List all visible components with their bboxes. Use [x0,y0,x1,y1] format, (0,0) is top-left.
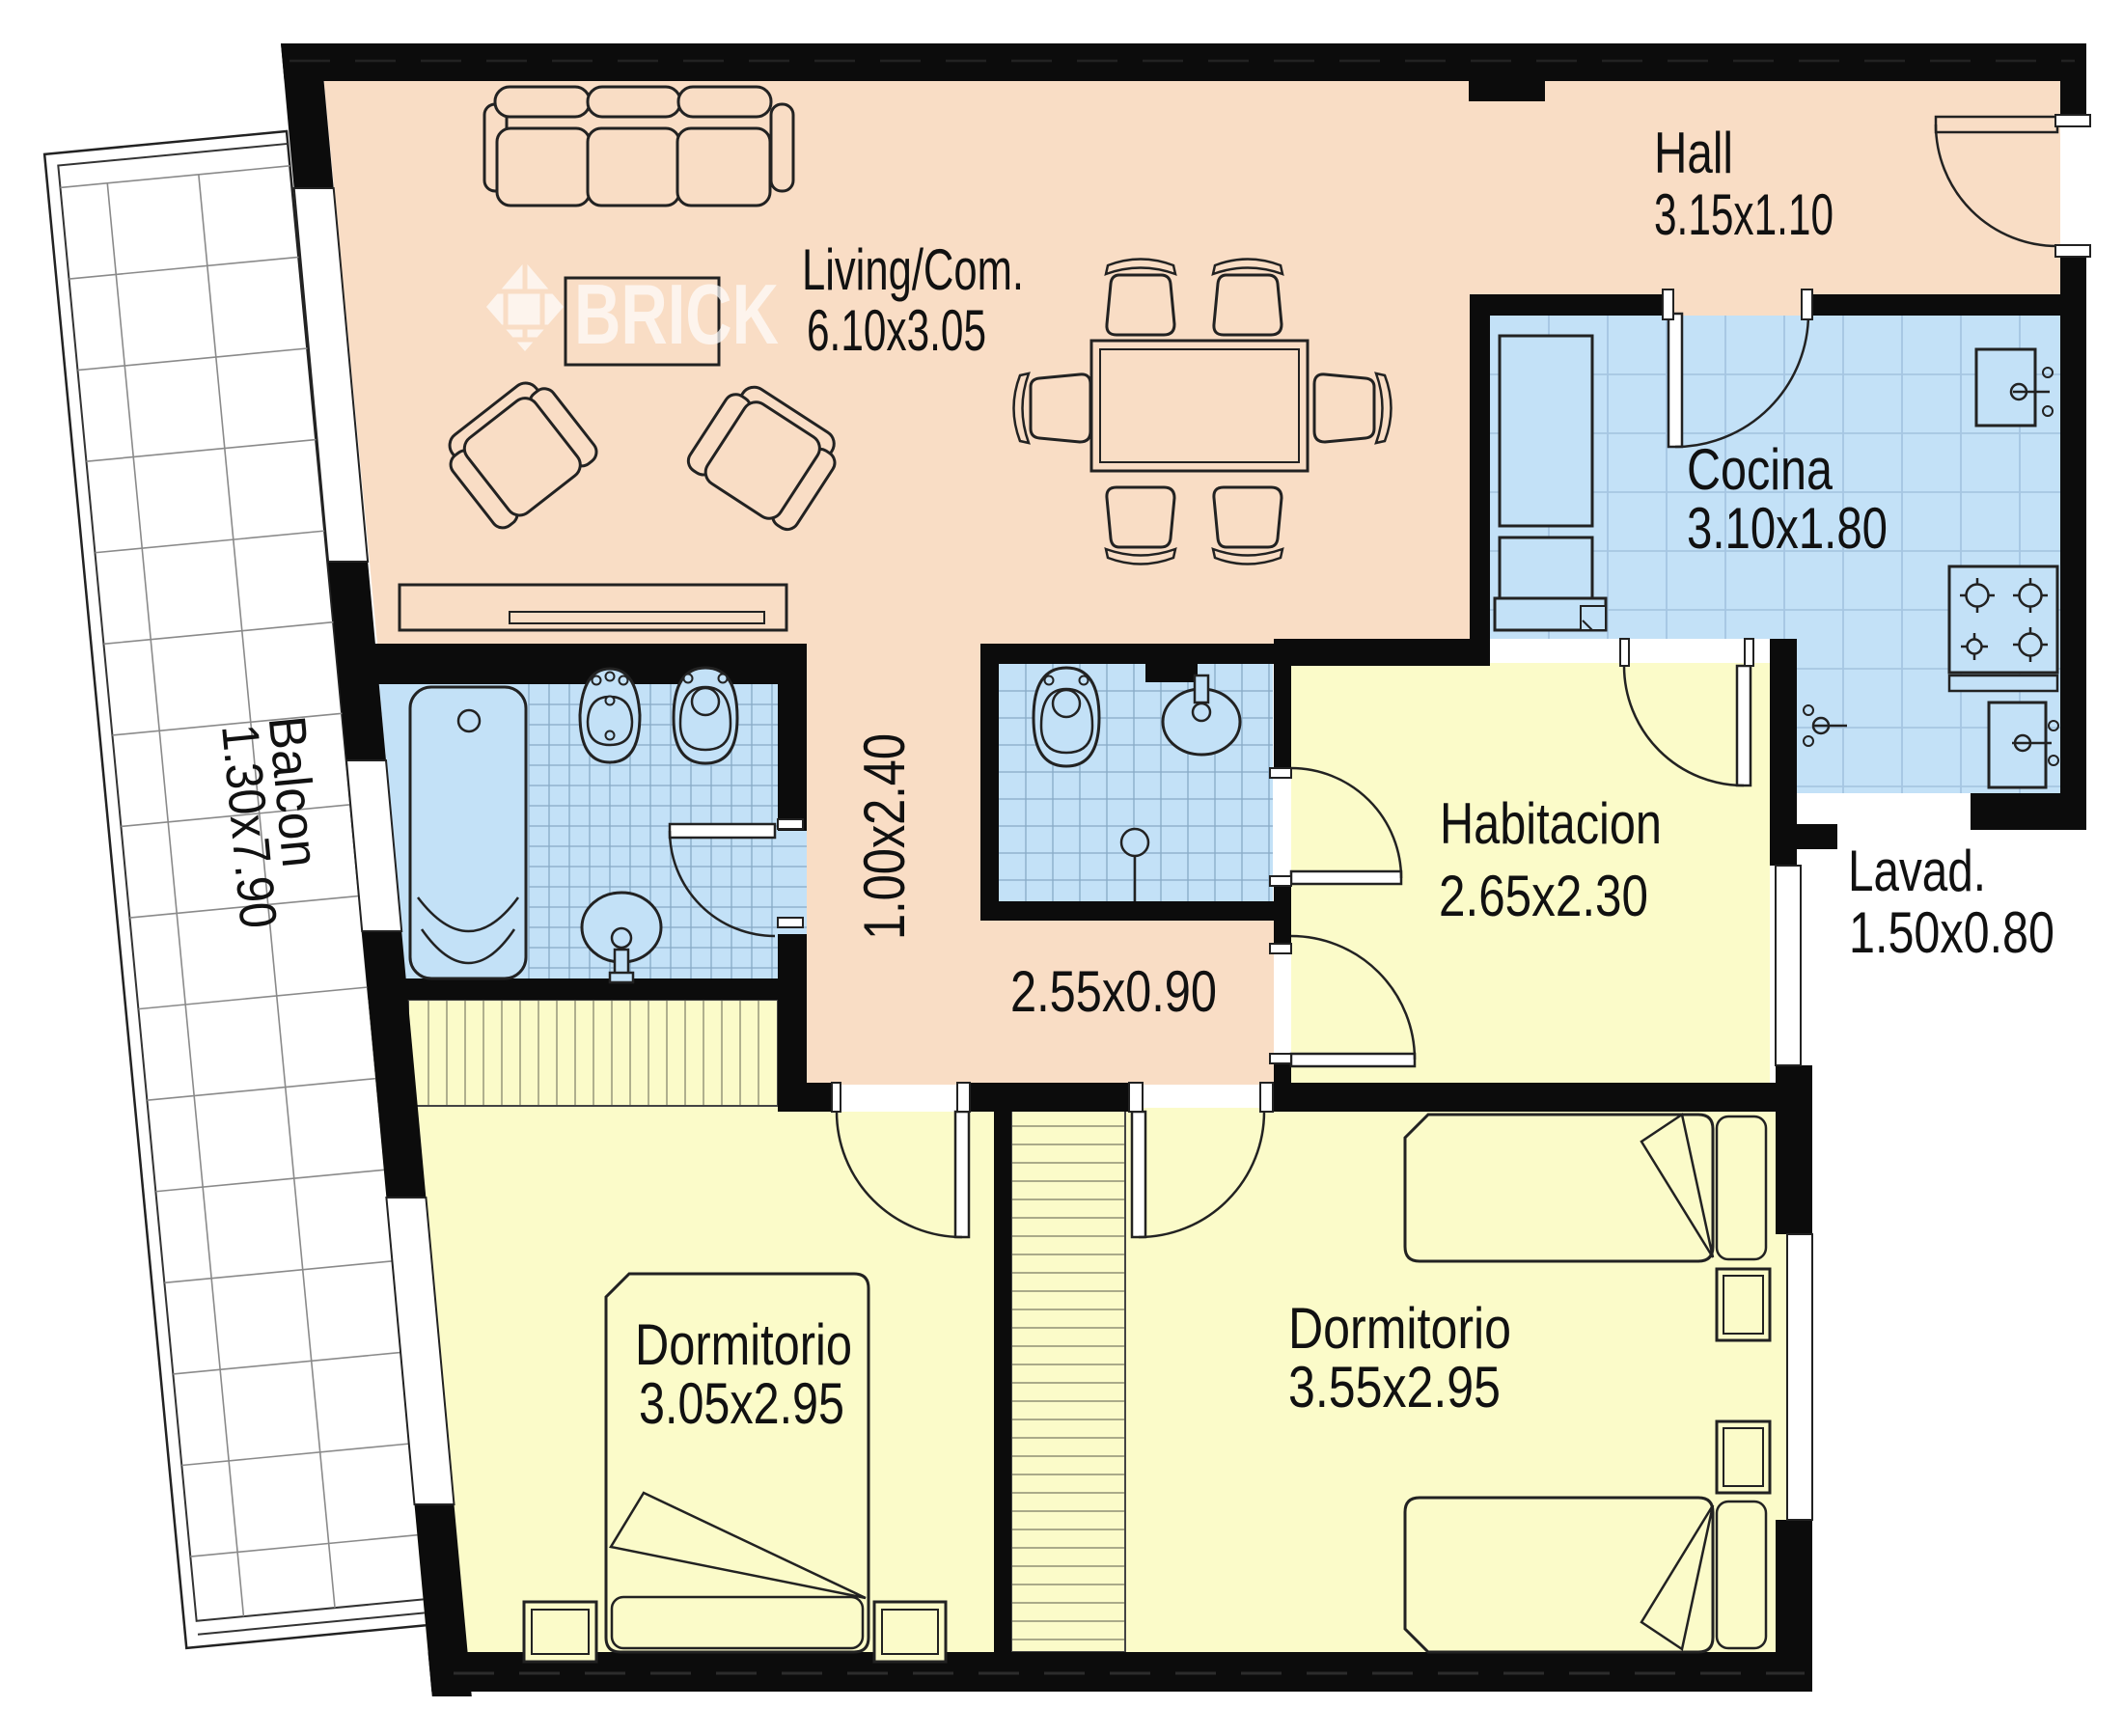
svg-text:1.50x0.80: 1.50x0.80 [1849,900,2054,965]
svg-text:Dormitorio: Dormitorio [1288,1296,1511,1361]
svg-text:3.15x1.10: 3.15x1.10 [1654,182,1833,247]
svg-text:2.65x2.30: 2.65x2.30 [1439,864,1648,928]
svg-text:Hall: Hall [1654,121,1733,185]
svg-text:Dormitorio: Dormitorio [635,1312,852,1377]
svg-text:Habitacion: Habitacion [1440,791,1662,856]
svg-text:3.10x1.80: 3.10x1.80 [1687,496,1888,561]
svg-text:Living/Com.: Living/Com. [802,237,1024,302]
svg-text:BRICK: BRICK [574,266,779,362]
svg-text:3.55x2.95: 3.55x2.95 [1288,1355,1501,1419]
svg-text:1.00x2.40: 1.00x2.40 [852,733,917,940]
svg-text:2.55x0.90: 2.55x0.90 [1010,959,1217,1024]
svg-text:6.10x3.05: 6.10x3.05 [807,298,986,363]
svg-text:Cocina: Cocina [1687,437,1833,502]
svg-text:Lavad.: Lavad. [1848,839,1986,903]
svg-text:3.05x2.95: 3.05x2.95 [639,1371,844,1436]
